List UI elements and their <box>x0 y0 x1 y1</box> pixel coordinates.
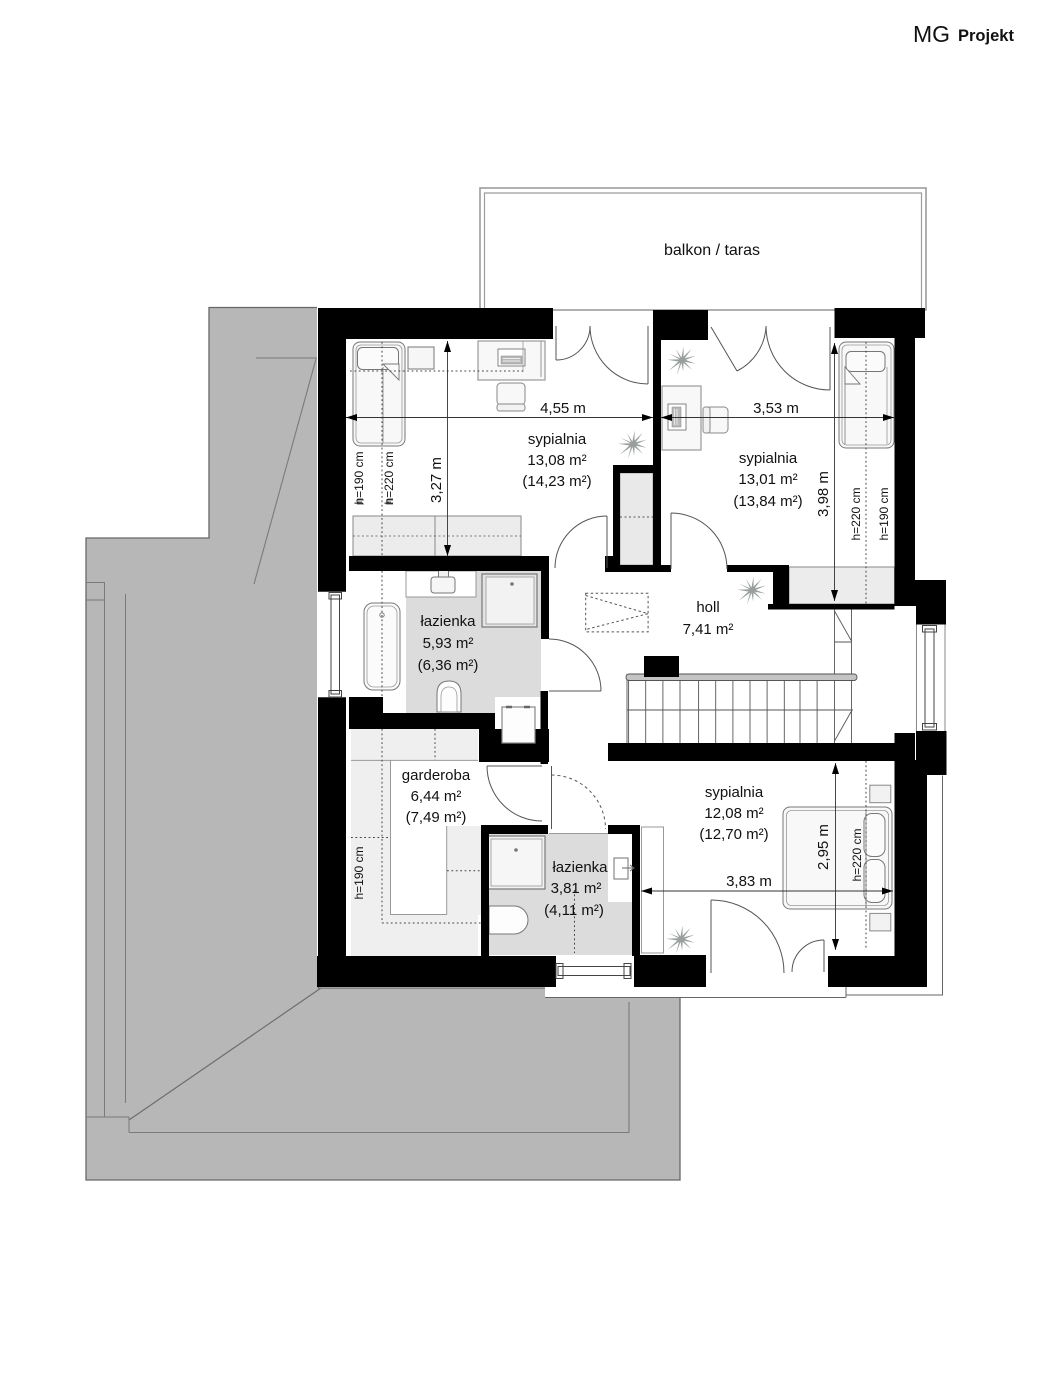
svg-text:łazienka: łazienka <box>420 613 476 630</box>
svg-text:h=190 cm: h=190 cm <box>352 451 366 504</box>
svg-text:4,55 m: 4,55 m <box>540 400 586 417</box>
svg-text:3,83 m: 3,83 m <box>726 873 772 890</box>
svg-text:3,81 m²: 3,81 m² <box>551 880 602 897</box>
svg-text:łazienka: łazienka <box>552 859 608 876</box>
svg-text:13,08 m²: 13,08 m² <box>527 452 586 469</box>
svg-text:(13,84 m²): (13,84 m²) <box>733 493 802 510</box>
svg-text:Projekt: Projekt <box>958 27 1014 45</box>
svg-text:holl: holl <box>696 599 719 616</box>
svg-text:7,41 m²: 7,41 m² <box>683 621 734 638</box>
svg-text:12,08 m²: 12,08 m² <box>704 805 763 822</box>
svg-text:(6,36 m²): (6,36 m²) <box>418 657 479 674</box>
svg-text:5,93 m²: 5,93 m² <box>423 635 474 652</box>
svg-text:(4,11 m²): (4,11 m²) <box>544 902 604 919</box>
svg-text:sypialnia: sypialnia <box>705 784 764 801</box>
svg-text:(7,49 m²): (7,49 m²) <box>406 809 467 826</box>
svg-text:h=190 cm: h=190 cm <box>352 846 366 899</box>
svg-text:3,27 m: 3,27 m <box>428 457 445 503</box>
svg-text:6,44 m²: 6,44 m² <box>411 788 462 805</box>
svg-text:garderoba: garderoba <box>402 767 471 784</box>
svg-text:h=220 cm: h=220 cm <box>849 487 863 540</box>
svg-text:(14,23 m²): (14,23 m²) <box>522 473 591 490</box>
svg-text:sypialnia: sypialnia <box>739 450 798 467</box>
svg-text:3,98 m: 3,98 m <box>815 471 832 517</box>
svg-text:2,95 m: 2,95 m <box>815 824 832 870</box>
svg-text:MG: MG <box>913 21 950 47</box>
svg-text:3,53 m: 3,53 m <box>753 400 799 417</box>
svg-text:h=220 cm: h=220 cm <box>850 828 864 881</box>
svg-text:h=190 cm: h=190 cm <box>877 487 891 540</box>
svg-text:sypialnia: sypialnia <box>528 431 587 448</box>
svg-text:balkon / taras: balkon / taras <box>664 242 760 259</box>
svg-text:h=220 cm: h=220 cm <box>382 451 396 504</box>
svg-text:13,01 m²: 13,01 m² <box>738 471 797 488</box>
svg-text:(12,70 m²): (12,70 m²) <box>699 826 768 843</box>
